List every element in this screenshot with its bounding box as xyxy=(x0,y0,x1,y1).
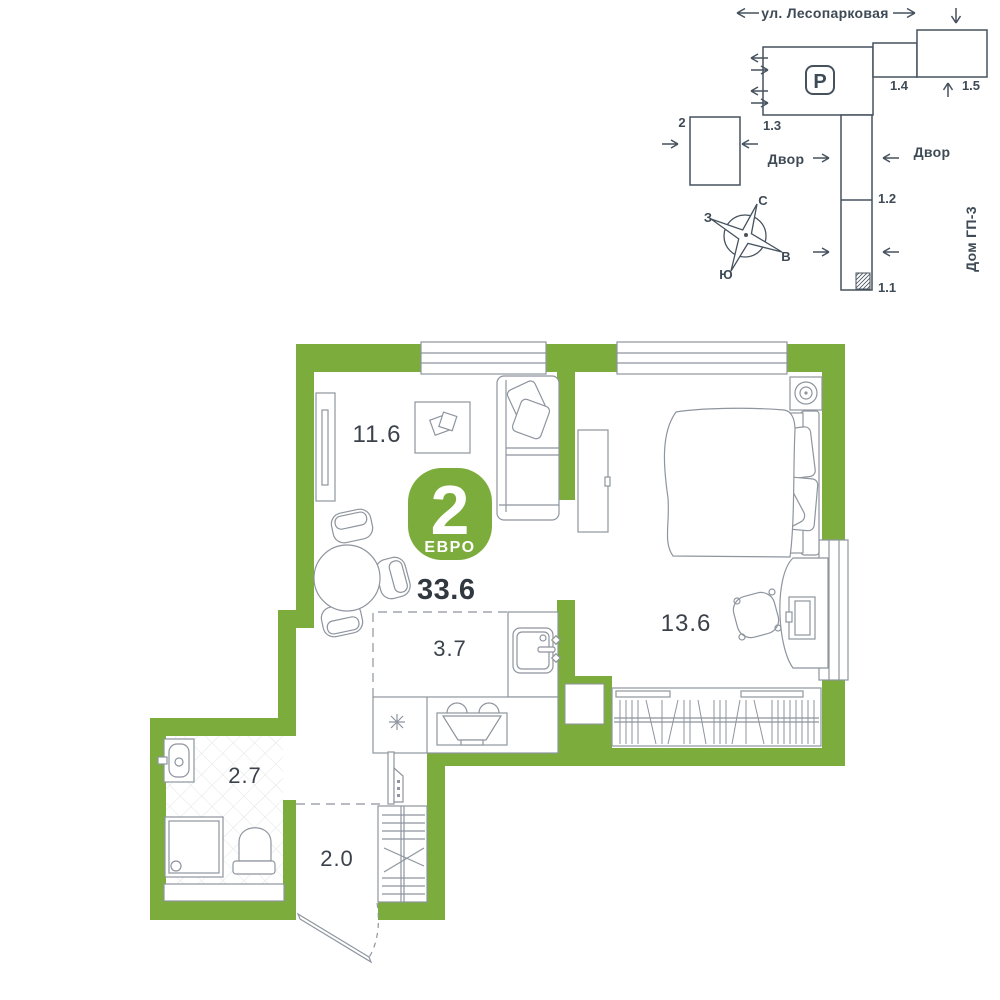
compass-west: З xyxy=(704,210,712,225)
floorplan-canvas: ул. Лесопарковая P 1.3 1.4 1.5 2 1.2 1.1 xyxy=(0,0,1000,1000)
entry-arrow-icon xyxy=(883,154,899,162)
building-1-4 xyxy=(873,43,917,77)
window-bedroom xyxy=(617,342,787,374)
wardrobe xyxy=(612,688,821,746)
building-1-5 xyxy=(917,30,987,77)
monitor xyxy=(789,597,815,639)
parking-letter: P xyxy=(813,71,826,93)
vent-shaft xyxy=(565,684,604,724)
entry-arrow-icon xyxy=(662,140,678,148)
yard-right-label: Двор xyxy=(914,144,951,160)
entry-arrow-icon xyxy=(883,248,899,256)
entry-arrow-icon xyxy=(742,140,758,148)
living-area-label: 11.6 xyxy=(353,421,402,448)
dining-set xyxy=(314,507,413,639)
street-name-label: ул. Лесопарковая xyxy=(761,5,888,21)
badge-room-count: 2 xyxy=(431,471,470,549)
street-arrow-right-icon xyxy=(893,9,915,18)
bedroom-area-label: 13.6 xyxy=(661,610,712,637)
dining-table xyxy=(314,545,380,611)
kitchen-zone xyxy=(373,612,560,753)
total-area-label: 33.6 xyxy=(417,574,475,606)
badge-type: ЕВРО xyxy=(424,539,475,556)
wall-niche xyxy=(164,884,284,901)
fridge-spot-icon xyxy=(389,714,405,730)
building-1-1-label: 1.1 xyxy=(878,280,896,295)
building-1-2-label: 1.2 xyxy=(878,191,896,206)
kitchen-sink xyxy=(513,628,560,673)
building-1-2-1-1 xyxy=(841,115,872,290)
building-2 xyxy=(690,117,740,185)
floorplan-page: ул. Лесопарковая P 1.3 1.4 1.5 2 1.2 1.1 xyxy=(0,0,1000,1000)
building-2-label: 2 xyxy=(678,115,685,130)
shower xyxy=(165,817,223,877)
hallway-area-label: 2.0 xyxy=(320,846,354,871)
site-plan: ул. Лесопарковая P 1.3 1.4 1.5 2 1.2 1.1 xyxy=(662,5,987,295)
current-building-marker xyxy=(856,273,870,289)
compass-north: С xyxy=(758,193,768,208)
bedroom-tv-unit xyxy=(578,430,610,532)
apartment-badge: 2 ЕВРО xyxy=(408,468,492,560)
entrance-door xyxy=(298,903,378,962)
entry-arrow-icon xyxy=(813,248,829,256)
bed xyxy=(664,408,819,557)
hall-closet xyxy=(378,806,427,902)
blanket xyxy=(664,408,795,557)
building-1-3-label: 1.3 xyxy=(763,118,781,133)
side-table xyxy=(415,402,470,453)
window-living xyxy=(421,342,546,374)
tv-unit xyxy=(316,393,335,501)
entry-arrow-icon xyxy=(813,154,829,162)
sofa xyxy=(497,376,559,520)
ceiling-light xyxy=(790,377,822,410)
kitchen-area-label: 3.7 xyxy=(433,636,467,661)
electric-panel xyxy=(388,752,403,804)
entry-arrow-up-icon xyxy=(944,83,953,97)
street-arrow-left-icon xyxy=(737,9,759,18)
floor-plan: 2 ЕВРО 33.6 11.6 13.6 3.7 2.7 2.0 xyxy=(150,342,848,962)
entry-arrow-down-icon xyxy=(952,8,961,23)
compass-south: Ю xyxy=(719,267,732,282)
desk xyxy=(780,558,828,668)
building-1-4-label: 1.4 xyxy=(890,78,909,93)
yard-left-label: Двор xyxy=(768,151,805,167)
house-name-label: Дом ГП-3 xyxy=(963,206,979,272)
building-1-5-label: 1.5 xyxy=(962,78,980,93)
compass-east: В xyxy=(781,249,790,264)
bathroom-area-label: 2.7 xyxy=(228,763,262,788)
compass-icon: С З В Ю xyxy=(704,193,791,282)
desk-chair xyxy=(730,589,781,641)
